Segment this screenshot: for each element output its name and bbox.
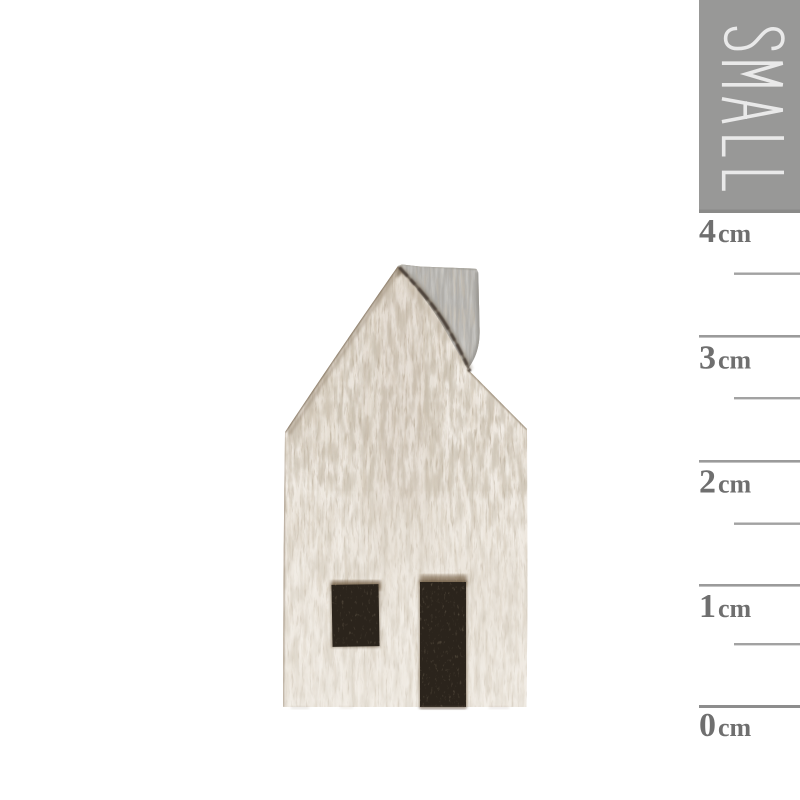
svg-text:3cm: 3cm bbox=[699, 339, 752, 376]
svg-text:4cm: 4cm bbox=[699, 213, 752, 250]
svg-text:0cm: 0cm bbox=[699, 707, 752, 744]
svg-text:1cm: 1cm bbox=[699, 588, 752, 625]
svg-text:2cm: 2cm bbox=[699, 464, 752, 501]
